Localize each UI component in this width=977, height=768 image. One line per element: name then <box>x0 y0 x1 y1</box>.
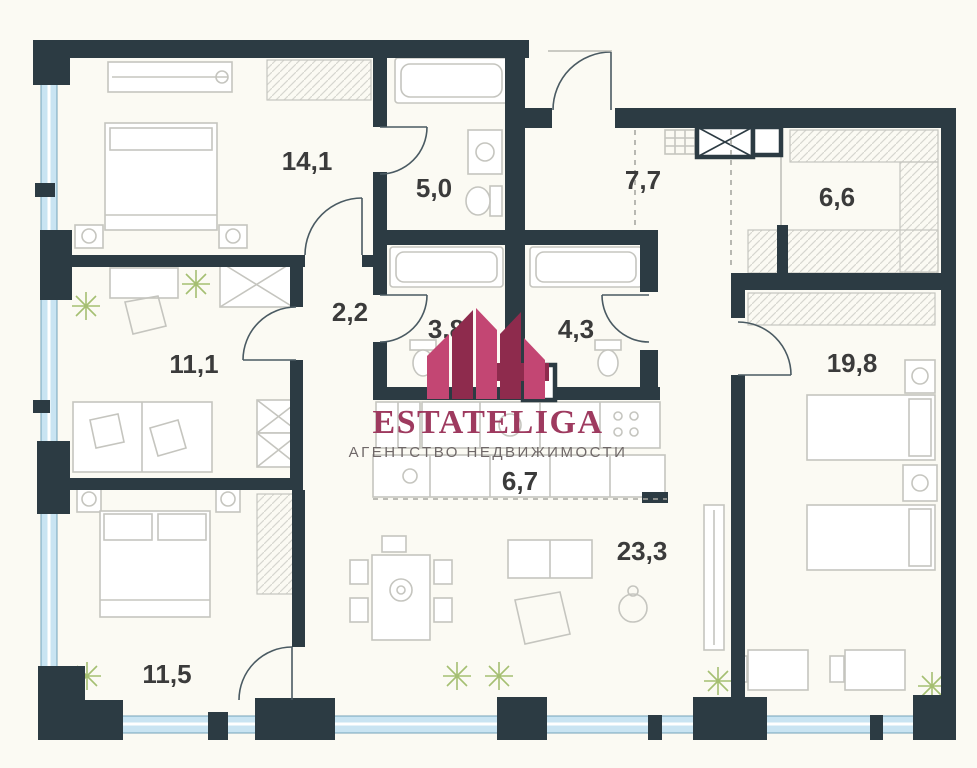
wardrobe <box>257 494 293 594</box>
chair <box>382 536 406 552</box>
room-label-7-7: 7,7 <box>625 165 661 195</box>
room-label-23-3: 23,3 <box>617 536 668 566</box>
nightstand <box>903 465 937 501</box>
plant-icon <box>72 292 100 320</box>
plant-icon <box>182 270 210 298</box>
chair <box>434 560 452 584</box>
double-bed <box>100 511 210 617</box>
room-label-4-3: 4,3 <box>558 314 594 344</box>
desk <box>748 650 808 690</box>
room-label-11-5: 11,5 <box>142 659 191 689</box>
double-bed <box>105 123 217 230</box>
wardrobe-shelving <box>790 130 938 162</box>
room-label-14-1: 14,1 <box>282 146 333 176</box>
clothes-rack <box>267 60 371 100</box>
single-bed <box>807 395 935 460</box>
sink <box>468 130 502 174</box>
room-label-5-0: 5,0 <box>416 173 452 203</box>
built-in-closet <box>220 262 293 307</box>
single-bed <box>807 505 935 570</box>
nightstand <box>216 487 240 512</box>
watermark-brand: ESTATELIGA <box>372 404 603 441</box>
toilet <box>490 186 502 216</box>
chair <box>830 656 844 682</box>
chair <box>434 598 452 622</box>
chair <box>350 560 368 584</box>
bathtub <box>390 247 503 287</box>
nightstand <box>905 360 935 393</box>
plant-icon <box>704 667 732 695</box>
ventilation-shaft <box>697 127 753 157</box>
room-label-19-8: 19,8 <box>827 348 878 378</box>
bathtub <box>530 247 642 287</box>
wardrobe-shelving <box>748 293 935 325</box>
plant-icon <box>485 662 513 690</box>
chair <box>350 598 368 622</box>
nightstand <box>77 487 101 512</box>
room-label-2-2: 2,2 <box>332 297 368 327</box>
room-label-11-1: 11,1 <box>169 349 218 379</box>
watermark-subtitle: АГЕНТСТВО НЕДВИЖИМОСТИ <box>349 444 628 461</box>
utility-shaft <box>753 127 781 155</box>
plant-icon <box>443 662 471 690</box>
desk <box>110 268 178 298</box>
dining-table <box>372 555 430 640</box>
floor-plan-svg: 14,15,07,76,62,23,84,311,119,86,723,311,… <box>0 0 977 768</box>
room-label-6-7: 6,7 <box>502 466 538 496</box>
floorplan-image: 14,15,07,76,62,23,84,311,119,86,723,311,… <box>0 0 977 768</box>
desk <box>845 650 905 690</box>
wardrobe-shelving <box>748 230 938 273</box>
toilet <box>595 340 621 350</box>
room-label-6-6: 6,6 <box>819 182 855 212</box>
